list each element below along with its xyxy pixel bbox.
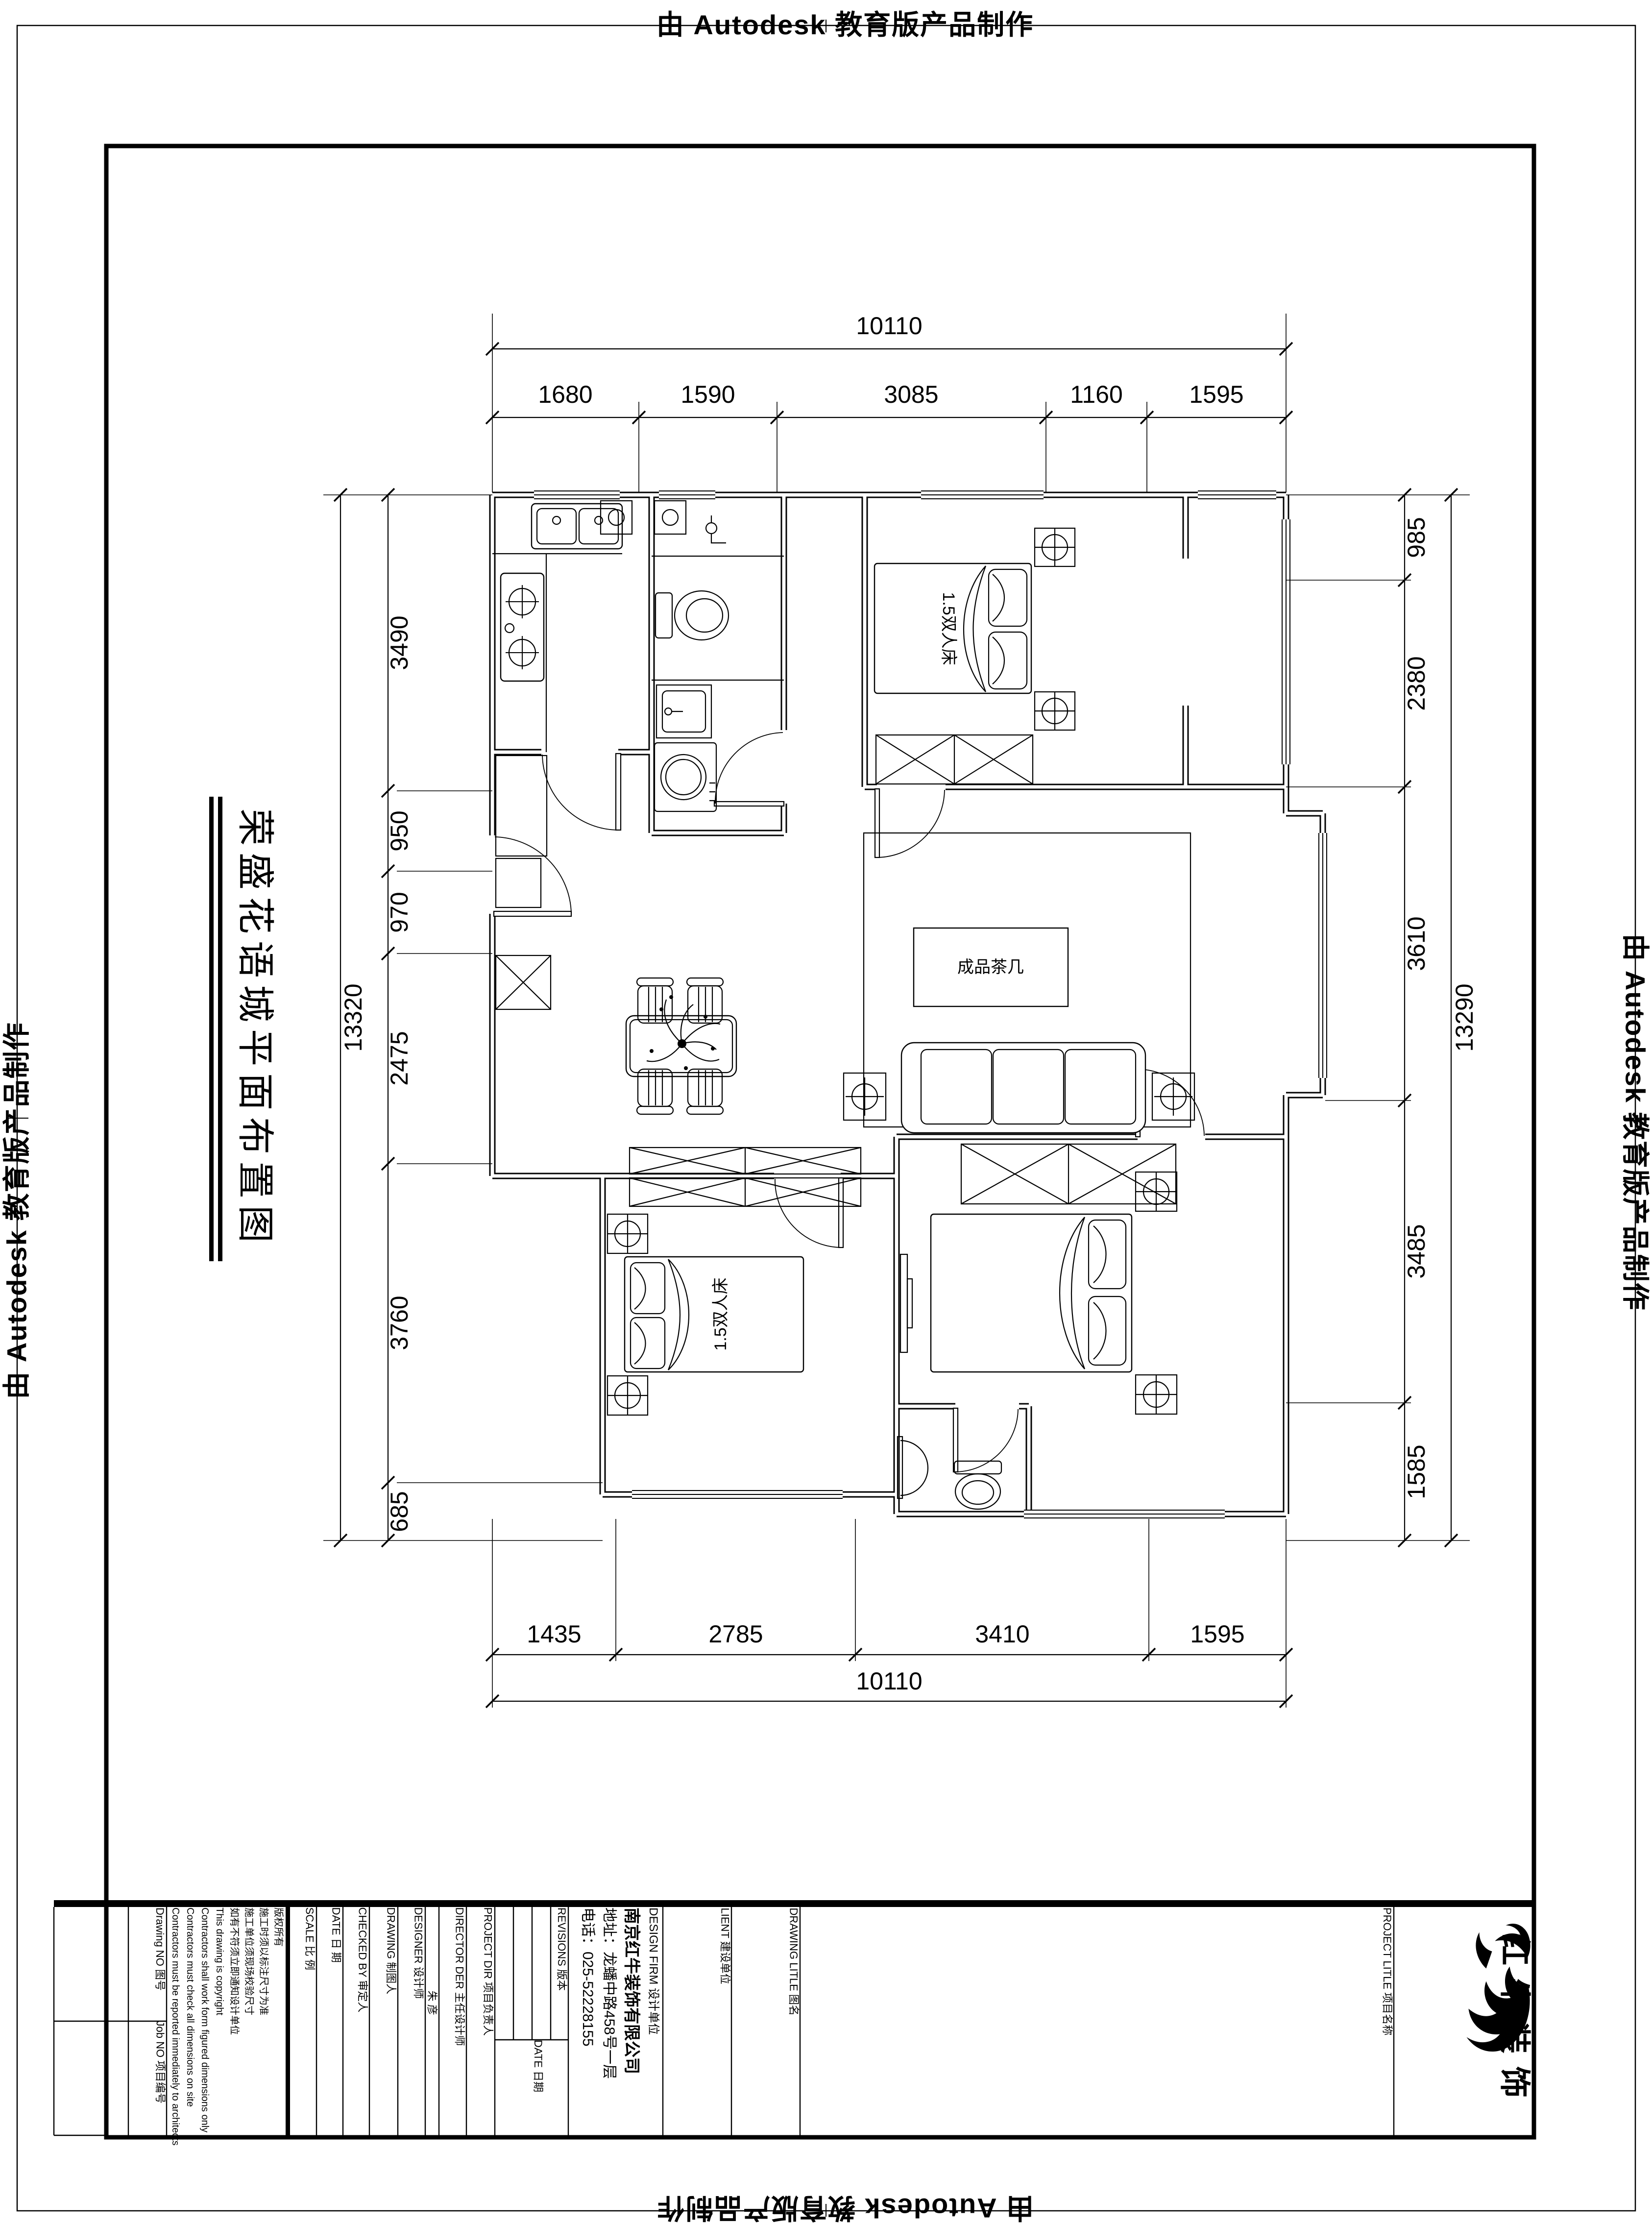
note-line: Contractors must be reported immediately…	[168, 1907, 183, 2136]
bed2-label: 1.5双人床	[711, 1277, 730, 1350]
dim-top-seg: 1160	[1070, 381, 1123, 408]
note-line: 如有不符须立即通知设计单位	[227, 1907, 242, 2136]
wardrobe2	[630, 1178, 861, 1206]
dim-bottom-total: 10110	[856, 1667, 922, 1695]
dim-top-seg: 1590	[680, 381, 735, 408]
bathroom-top	[652, 515, 784, 811]
wardrobe1	[876, 735, 1033, 784]
dim-top: 10110 1680 1590 3085 1160 1595	[486, 312, 1292, 492]
toilet	[656, 591, 729, 640]
dim-right: 985 2380 3610 3485 1585 13290	[1286, 489, 1478, 1547]
firm-name: 南京红牛装饰有限公司	[620, 1907, 643, 2136]
nightstand	[607, 1214, 648, 1253]
field-job-no: Job NO 项目编号	[129, 2021, 167, 2136]
bedroom2: 1.5双人床	[607, 1178, 861, 1415]
copyright-notes: 版权所有 施工时须以标注尺寸为准 施工单位须现场校验尺寸 如有不符须立即通知设计…	[167, 1907, 286, 2136]
field-director-name: 朱 彦	[425, 1907, 439, 2136]
drawing-title-text: 荣盛花语城平面布置图	[234, 808, 276, 1249]
firm-address: 地址：龙蟠中路458号一层	[598, 1907, 620, 2136]
dim-left-total: 13320	[340, 983, 367, 1051]
nightstand	[607, 1376, 648, 1415]
field-revisions: REVISIONS 版本	[551, 1907, 568, 2040]
field-director: DIRECTOR DER 主任设计师	[439, 1907, 466, 2136]
sofa	[901, 1043, 1145, 1133]
dim-top-total: 10110	[856, 312, 922, 340]
drawing-title: 荣盛花语城平面布置图	[209, 794, 286, 1264]
note-line: This drawing is copyright	[212, 1907, 227, 2136]
field-scale: SCALE 比 例	[290, 1907, 316, 2136]
nightstand	[1035, 528, 1075, 567]
window-bedroom1	[921, 491, 1044, 499]
bedroom2-door	[775, 1178, 843, 1247]
washing-machine	[655, 743, 716, 811]
bedroom1-door	[875, 789, 945, 857]
ensuite-door	[953, 1408, 1018, 1472]
dim-bottom-seg: 2785	[708, 1620, 763, 1648]
design-firm-cell: DESIGN FIRM 设计单位 南京红牛装饰有限公司 地址：龙蟠中路458号一…	[568, 1907, 663, 2136]
dim-left-seg: 2475	[386, 1031, 413, 1085]
window-bath	[659, 491, 715, 499]
dim-left-seg: 3490	[386, 615, 413, 670]
field-project-dir: PROJECT DIR 项目负责人	[466, 1907, 495, 2136]
ensuite-bath	[898, 1437, 1001, 1509]
dim-top-seg: 1595	[1189, 381, 1243, 408]
window-living-bay	[1319, 833, 1327, 1078]
kitchen-cabinet	[496, 756, 547, 856]
field-design-firm: DESIGN FIRM 设计单位	[643, 1907, 663, 2136]
window-master	[1024, 1510, 1225, 1518]
dim-left: 3490 950 970 2475 3760 685 13320	[323, 489, 603, 1547]
dim-right-seg: 3610	[1403, 916, 1430, 971]
dim-top-seg: 1680	[538, 381, 592, 408]
dim-top-seg: 3085	[884, 381, 938, 408]
drawing-sheet: 由 Autodesk 教育版产品制作 由 Autodesk 教育版产品制作 由 …	[0, 0, 1652, 2225]
note-line: Contractors shall work form figured dime…	[197, 1907, 212, 2136]
nightstand	[1136, 1375, 1177, 1414]
note-line: Contractors must check all dimensions on…	[183, 1907, 197, 2136]
title-underline	[209, 797, 214, 1261]
window-balcony-top	[1198, 491, 1276, 499]
window-bedroom2	[632, 1491, 843, 1498]
dim-right-seg: 1585	[1403, 1444, 1430, 1499]
kitchen-sink	[532, 504, 622, 549]
note-line: 施工单位须现场校验尺寸	[242, 1907, 256, 2136]
kitchen-door	[542, 754, 621, 830]
ensuite-toilet	[954, 1461, 1001, 1509]
nightstand	[1136, 1172, 1177, 1211]
note-line: 施工时须以标注尺寸为准	[256, 1907, 271, 2136]
dim-bottom-seg: 3410	[975, 1620, 1029, 1648]
dim-right-total: 13290	[1451, 983, 1478, 1051]
master-bedroom	[900, 1144, 1177, 1414]
coffee-table-label: 成品茶几	[957, 958, 1024, 977]
dim-right-seg: 2380	[1403, 656, 1430, 710]
field-rev-date: DATE 日期	[518, 2040, 545, 2135]
field-designer: DESIGNER 设计师	[398, 1907, 425, 2136]
kitchen	[492, 501, 686, 1009]
dim-left-seg: 950	[386, 810, 413, 851]
dim-left-seg: 970	[386, 892, 413, 932]
ensuite-basin	[900, 1441, 928, 1495]
dim-bottom: 1435 2785 3410 1595 10110	[486, 1519, 1292, 1708]
field-drawing-by: DRAWING 制图人	[369, 1907, 398, 2136]
field-checked-by: CHECKED BY 审定人	[343, 1907, 369, 2136]
field-client: LIENT 建设单位	[663, 1908, 732, 2137]
field-drawing-title: DRAWING LITLE 图名	[732, 1908, 801, 2137]
dim-bottom-seg: 1435	[527, 1620, 581, 1648]
dim-bottom-seg: 1595	[1190, 1620, 1244, 1648]
bed1-label: 1.5双人床	[939, 592, 958, 665]
wash-basin	[656, 685, 711, 738]
nightstand	[1035, 691, 1075, 731]
title-underline	[218, 797, 222, 1261]
dim-left-seg: 685	[386, 1491, 413, 1532]
window-balcony-right	[1282, 519, 1290, 764]
note-line: 版权所有	[271, 1907, 286, 2136]
firm-phone: 电话：025-52228155	[577, 1907, 598, 2136]
bull-logo-icon	[1451, 1908, 1534, 2094]
entry-door	[494, 837, 571, 916]
sideboard	[630, 1148, 861, 1174]
field-date: DATE 日 期	[316, 1907, 343, 2136]
living-room: 成品茶几	[844, 833, 1194, 1133]
basin-faucet	[706, 515, 726, 543]
dim-right-seg: 985	[1403, 517, 1430, 558]
tv-panel	[900, 1254, 912, 1352]
window-kitchen	[534, 491, 620, 499]
bedroom1: 1.5双人床	[875, 528, 1075, 784]
logo-cell: 红牛装饰	[1394, 1908, 1534, 2137]
side-table	[844, 1073, 886, 1120]
bath-door	[714, 733, 784, 806]
side-table	[1152, 1073, 1194, 1120]
dining-area	[626, 978, 861, 1174]
dim-left-seg: 3760	[386, 1296, 413, 1350]
field-drawing-no: Drawing NO 图号	[128, 1907, 167, 2021]
field-project-title: PROJECT LITLE 项目名称	[1367, 1907, 1394, 2136]
dim-right-seg: 3485	[1403, 1224, 1430, 1278]
